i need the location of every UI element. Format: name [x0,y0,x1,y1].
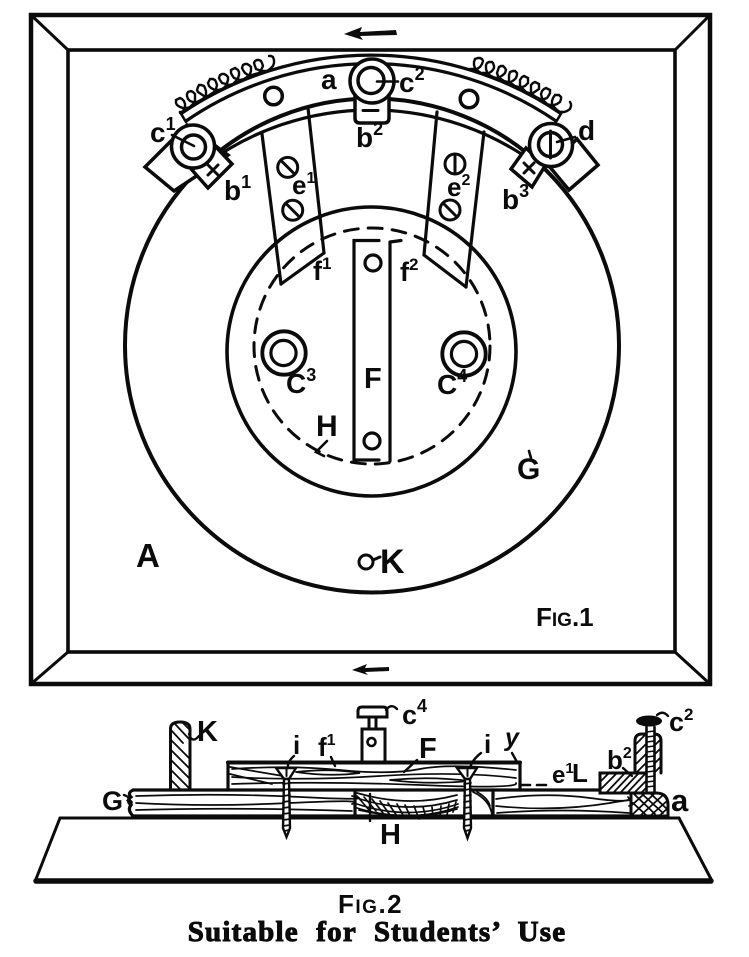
svg-text:b3: b3 [502,181,529,215]
svg-text:F: F [364,363,382,395]
svg-text:H: H [380,819,401,851]
svg-text:e1: e1 [552,760,574,789]
svg-text:C3: C3 [286,365,316,399]
svg-text:L: L [572,758,588,788]
svg-text:FIG.1: FIG.1 [536,602,594,632]
svg-text:i: i [484,729,491,759]
svg-text:Suitable for Students’ Use: Suitable for Students’ Use [188,916,567,948]
svg-text:a: a [671,783,689,818]
svg-text:c4: c4 [402,696,427,730]
svg-text:e2: e2 [447,172,470,202]
svg-text:e1: e1 [292,170,315,200]
svg-text:C4: C4 [437,366,467,400]
svg-text:y: y [503,724,520,752]
svg-text:H: H [316,410,338,443]
svg-text:a: a [321,64,337,95]
svg-text:G: G [517,453,540,486]
svg-text:d: d [578,115,595,146]
svg-text:c2: c2 [669,705,694,737]
svg-text:G: G [102,786,123,816]
svg-text:i: i [293,730,300,760]
svg-text:FIG.2: FIG.2 [338,889,403,919]
svg-text:b2: b2 [356,119,383,153]
svg-text:F: F [419,733,437,765]
svg-text:A: A [136,537,160,574]
svg-text:K: K [197,716,218,748]
svg-text:f2: f2 [400,255,418,287]
svg-text:f1: f1 [313,254,331,286]
svg-text:b1: b1 [224,172,251,206]
svg-text:K: K [380,543,405,581]
svg-text:c2: c2 [399,64,425,98]
svg-text:f1: f1 [318,732,336,762]
svg-text:b2: b2 [607,745,632,775]
